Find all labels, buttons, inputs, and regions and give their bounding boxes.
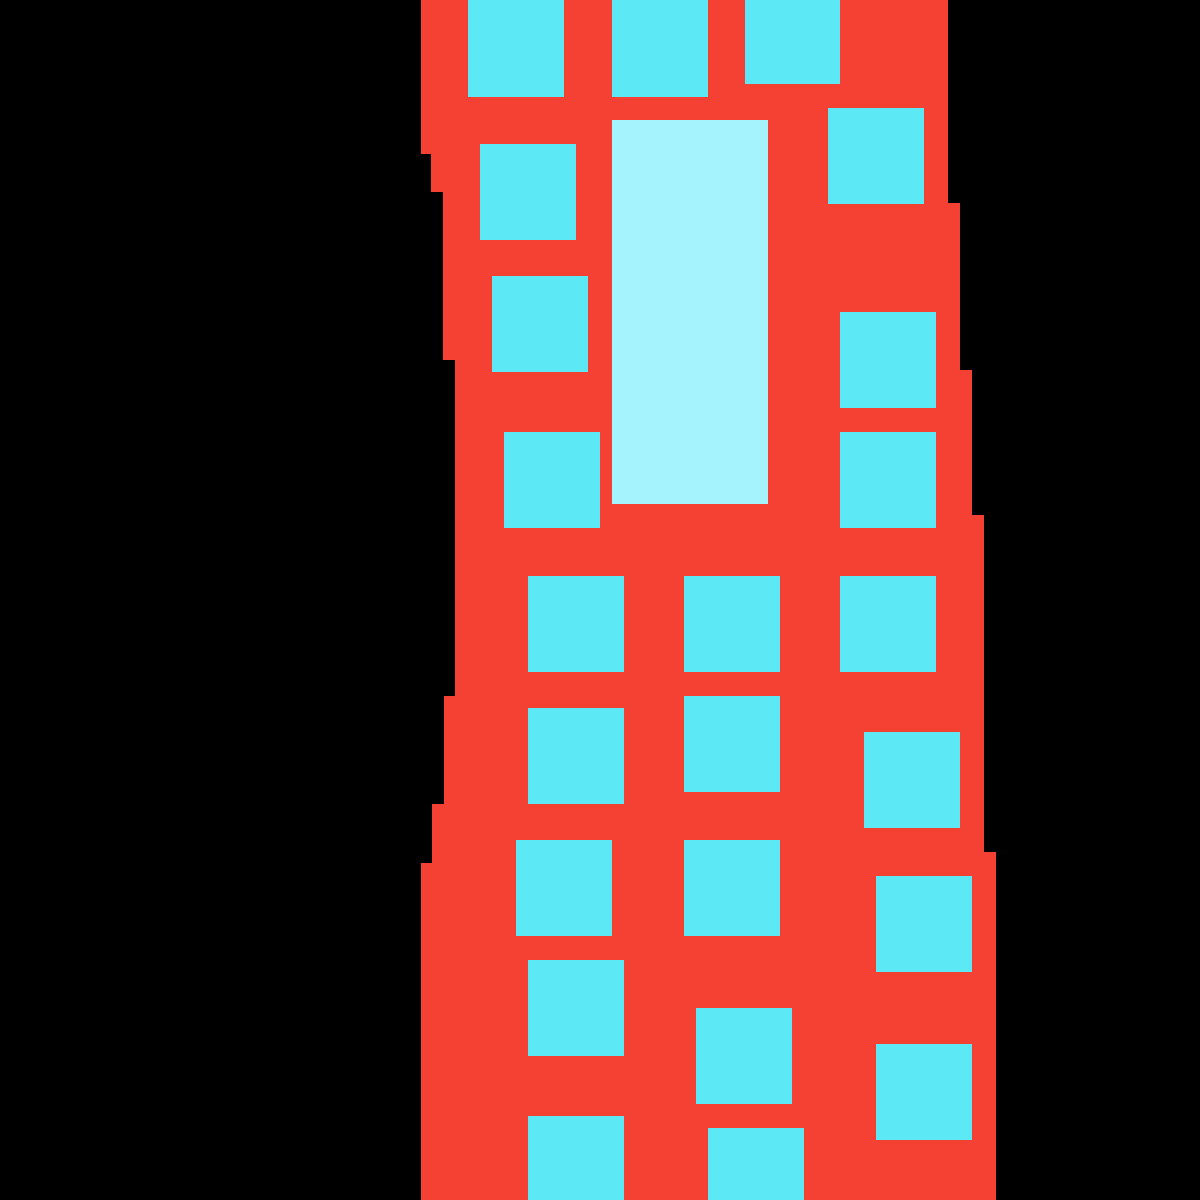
building-window: [840, 432, 936, 528]
building-window: [684, 840, 780, 936]
building-window: [696, 1008, 792, 1104]
building-window: [516, 840, 612, 936]
building-window: [684, 696, 780, 792]
building-window: [828, 108, 924, 204]
building-window: [480, 144, 576, 240]
building-window: [840, 312, 936, 408]
building-window: [745, 0, 840, 84]
building-window: [468, 0, 564, 97]
building-window: [492, 276, 588, 372]
building-window: [840, 576, 936, 672]
building-window: [528, 576, 624, 672]
pixel-art-canvas: [0, 0, 1200, 1200]
building-window: [504, 432, 600, 528]
building-window: [684, 576, 780, 672]
building-window: [876, 1044, 972, 1140]
building-window: [528, 708, 624, 804]
building-window: [612, 0, 708, 97]
building-window: [708, 1128, 804, 1200]
building-window: [528, 960, 624, 1056]
building-window: [528, 1116, 624, 1200]
building-window: [876, 876, 972, 972]
building-door-window: [612, 120, 768, 504]
artwork-stage: [0, 0, 1200, 1200]
building-window: [864, 732, 960, 828]
